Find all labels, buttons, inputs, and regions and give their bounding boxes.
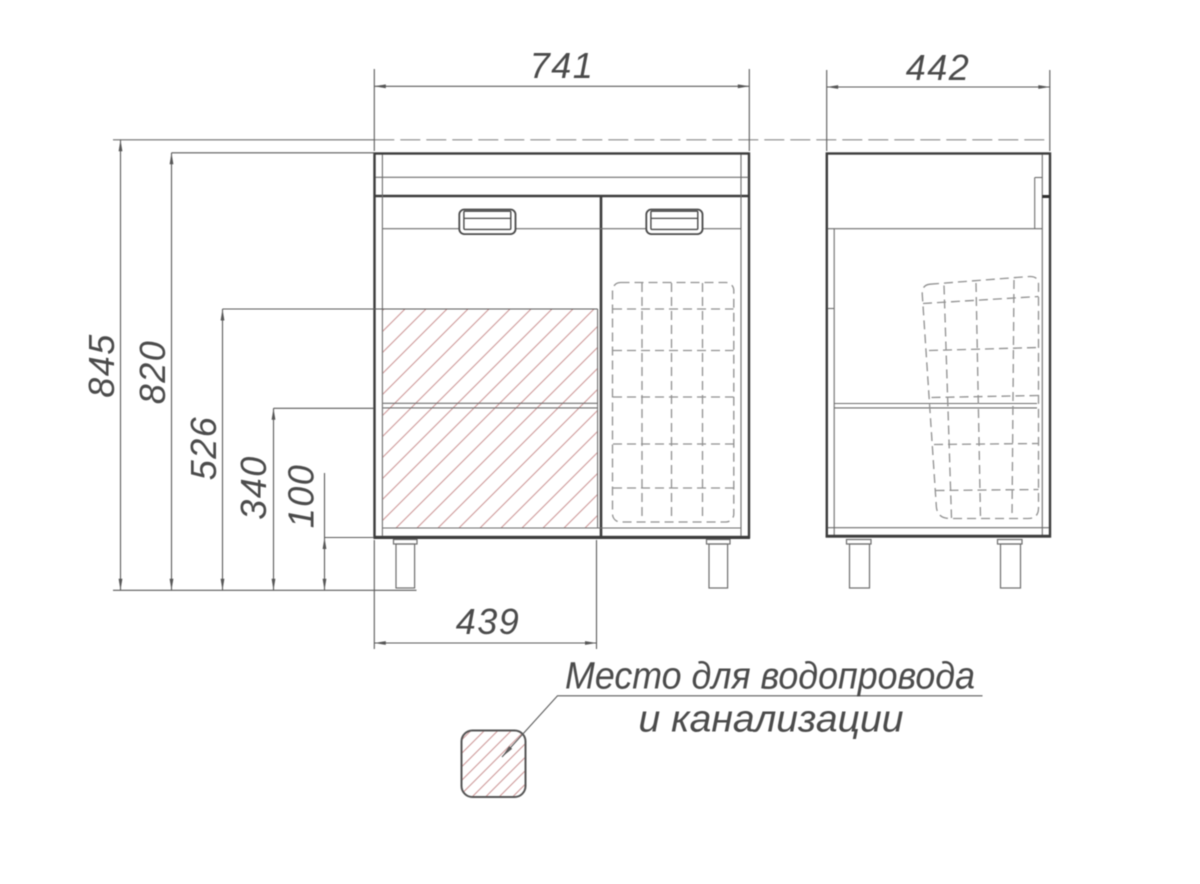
svg-text:Место для водопровода: Место для водопровода	[565, 656, 975, 698]
svg-text:и канализации: и канализации	[639, 699, 904, 741]
svg-text:100: 100	[281, 464, 322, 529]
svg-text:340: 340	[233, 455, 274, 520]
svg-text:439: 439	[456, 601, 521, 642]
svg-text:442: 442	[906, 47, 971, 88]
svg-text:845: 845	[81, 333, 122, 398]
svg-text:820: 820	[132, 340, 173, 405]
svg-text:741: 741	[530, 45, 595, 86]
svg-text:526: 526	[183, 416, 224, 481]
